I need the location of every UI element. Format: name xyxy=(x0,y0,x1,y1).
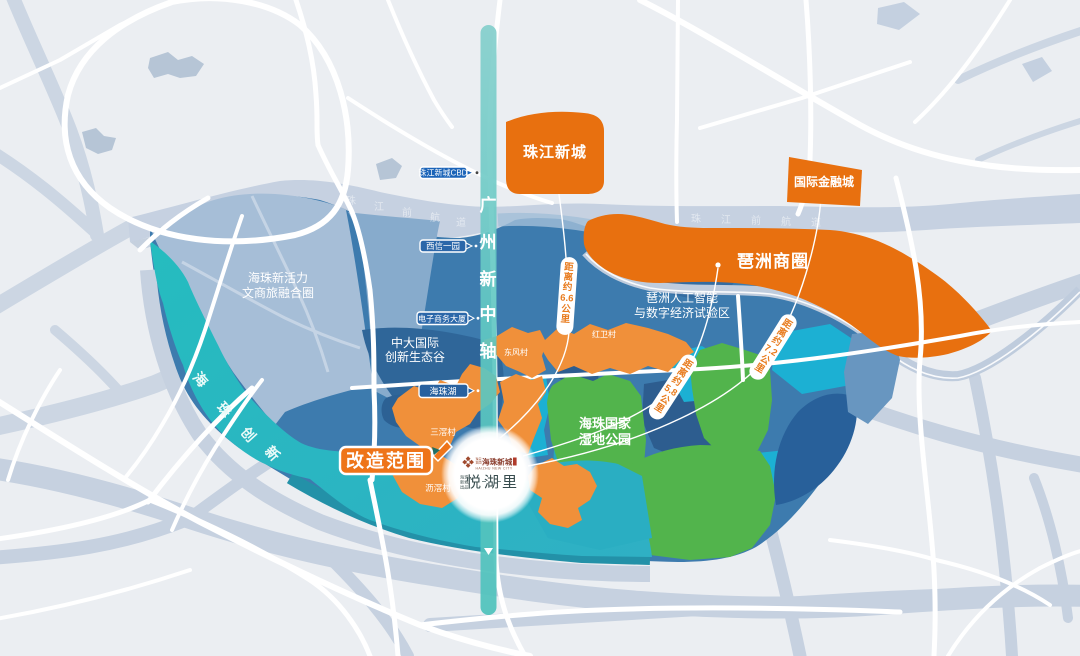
svg-text:江: 江 xyxy=(374,201,384,213)
svg-text:国际金融城: 国际金融城 xyxy=(794,174,854,189)
svg-text:集团: 集团 xyxy=(476,460,482,465)
svg-text:中: 中 xyxy=(480,304,497,324)
svg-text:广: 广 xyxy=(480,195,497,215)
svg-text:珠: 珠 xyxy=(346,194,356,207)
svg-text:航: 航 xyxy=(430,211,440,224)
svg-text:约: 约 xyxy=(562,281,572,294)
svg-text:西信一园: 西信一园 xyxy=(426,241,460,251)
svg-text:海珠湖: 海珠湖 xyxy=(429,385,456,396)
svg-text:珠江新城CBD: 珠江新城CBD xyxy=(419,168,468,178)
svg-text:红卫村: 红卫村 xyxy=(592,329,616,339)
svg-text:中大国际: 中大国际 xyxy=(391,335,439,350)
svg-text:东风村: 东风村 xyxy=(504,347,528,357)
svg-text:里: 里 xyxy=(560,314,571,326)
svg-text:琶洲人工智能: 琶洲人工智能 xyxy=(646,290,718,305)
svg-text:航: 航 xyxy=(781,215,791,228)
svg-text:珠: 珠 xyxy=(691,212,701,225)
svg-text:三滘村: 三滘村 xyxy=(430,427,456,437)
svg-text:湿地公园: 湿地公园 xyxy=(579,432,631,447)
svg-text:琶洲商圈: 琶洲商圈 xyxy=(737,251,809,271)
svg-text:电子商务大厦: 电子商务大厦 xyxy=(418,314,466,324)
svg-text:江: 江 xyxy=(721,214,731,226)
svg-text:轴: 轴 xyxy=(480,341,497,361)
svg-text:道: 道 xyxy=(456,216,466,229)
svg-text:与数字经济试验区: 与数字经济试验区 xyxy=(634,305,730,320)
svg-text:新: 新 xyxy=(480,269,497,289)
svg-text:创新生态谷: 创新生态谷 xyxy=(385,349,445,364)
svg-text:悦湖里: 悦湖里 xyxy=(466,474,520,491)
svg-text:海珠新城: 海珠新城 xyxy=(482,457,513,467)
svg-text:前: 前 xyxy=(751,214,761,227)
svg-text:改造范围: 改造范围 xyxy=(346,450,426,471)
svg-text:州: 州 xyxy=(479,233,497,252)
svg-text:6.6: 6.6 xyxy=(560,293,574,305)
svg-text:前: 前 xyxy=(402,206,412,219)
svg-text:海珠新活力: 海珠新活力 xyxy=(248,270,308,285)
svg-text:珠江新城: 珠江新城 xyxy=(523,143,587,161)
svg-text:HAIZHU NEW CITY: HAIZHU NEW CITY xyxy=(475,467,512,471)
svg-text:文商旅融合圈: 文商旅融合圈 xyxy=(242,285,314,300)
